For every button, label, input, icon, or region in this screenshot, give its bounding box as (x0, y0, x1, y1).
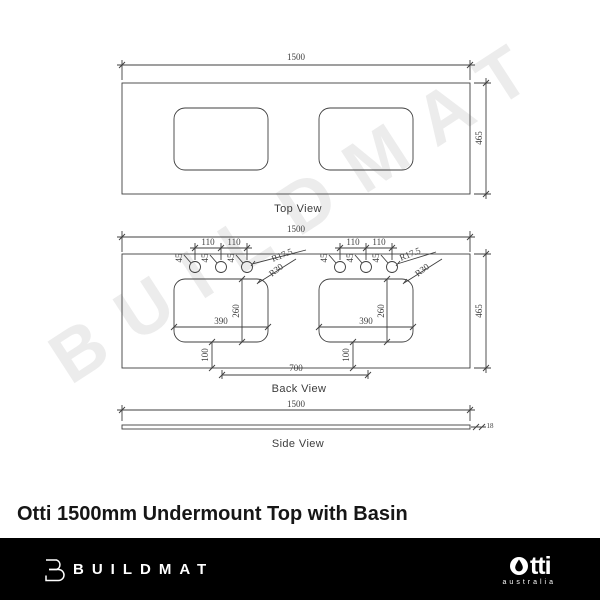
tap-hole-icon (216, 262, 227, 273)
tap-hole-icon (242, 262, 253, 273)
otti-drop-icon (508, 553, 530, 577)
dim-tap-hole-spacing: 110 (372, 237, 385, 247)
dim-basin-centres: 700 (289, 363, 303, 373)
dim-basin-depth: 260 (376, 304, 386, 318)
side-view-slab (122, 425, 470, 429)
dim-basin-front-offset: 100 (200, 348, 210, 362)
dim-basin-front-offset: 100 (341, 348, 351, 362)
otti-logo-subtext: australia (503, 579, 556, 586)
dim-tap-hole-offset: 45 (174, 254, 184, 263)
top-view-linework (117, 60, 491, 199)
side-view-label: Side View (272, 438, 324, 450)
dim-thickness: 18 (487, 422, 494, 430)
dim-overall-width-top: 1500 (287, 52, 305, 62)
product-title: Otti 1500mm Undermount Top with Basin (17, 503, 408, 526)
dim-tap-hole-offset: 45 (345, 254, 355, 263)
buildmat-logo-icon (44, 556, 66, 582)
dim-basin-depth: 260 (231, 304, 241, 318)
footer-bar: BUILDMAT tti australia (0, 538, 600, 600)
dim-tap-hole-spacing: 110 (201, 237, 214, 247)
drawing-sheet: BUILDMAT (0, 0, 600, 600)
back-view-label: Back View (272, 383, 327, 395)
back-view-basin-cutout-right (319, 279, 413, 342)
dim-overall-width-back: 1500 (287, 224, 305, 234)
dim-tap-hole-offset: 45 (319, 254, 329, 263)
dim-overall-depth-back: 465 (474, 304, 484, 318)
back-view-basin-cutout-left (174, 279, 268, 342)
dim-basin-width: 390 (359, 316, 373, 326)
dim-tap-hole-spacing: 110 (346, 237, 359, 247)
otti-logo-text: tti (530, 555, 551, 577)
dim-tap-hole-offset: 45 (371, 254, 381, 263)
tap-hole-icon (387, 262, 398, 273)
dim-tap-hole-spacing: 110 (227, 237, 240, 247)
top-view-basin-cutout-left (174, 108, 268, 170)
dim-tap-hole-offset: 45 (200, 254, 210, 263)
buildmat-logo-text: BUILDMAT (73, 561, 214, 578)
dim-basin-width: 390 (214, 316, 228, 326)
otti-logo: tti australia (503, 553, 556, 586)
tap-hole-icon (361, 262, 372, 273)
dim-tap-hole-offset: 45 (226, 254, 236, 263)
tap-hole-icon (335, 262, 346, 273)
dim-overall-width-side: 1500 (287, 399, 305, 409)
top-view-label: Top View (274, 203, 322, 215)
dim-overall-depth-top: 465 (474, 131, 484, 145)
top-view-basin-cutout-right (319, 108, 413, 170)
tap-hole-icon (190, 262, 201, 273)
buildmat-logo: BUILDMAT (44, 556, 214, 582)
